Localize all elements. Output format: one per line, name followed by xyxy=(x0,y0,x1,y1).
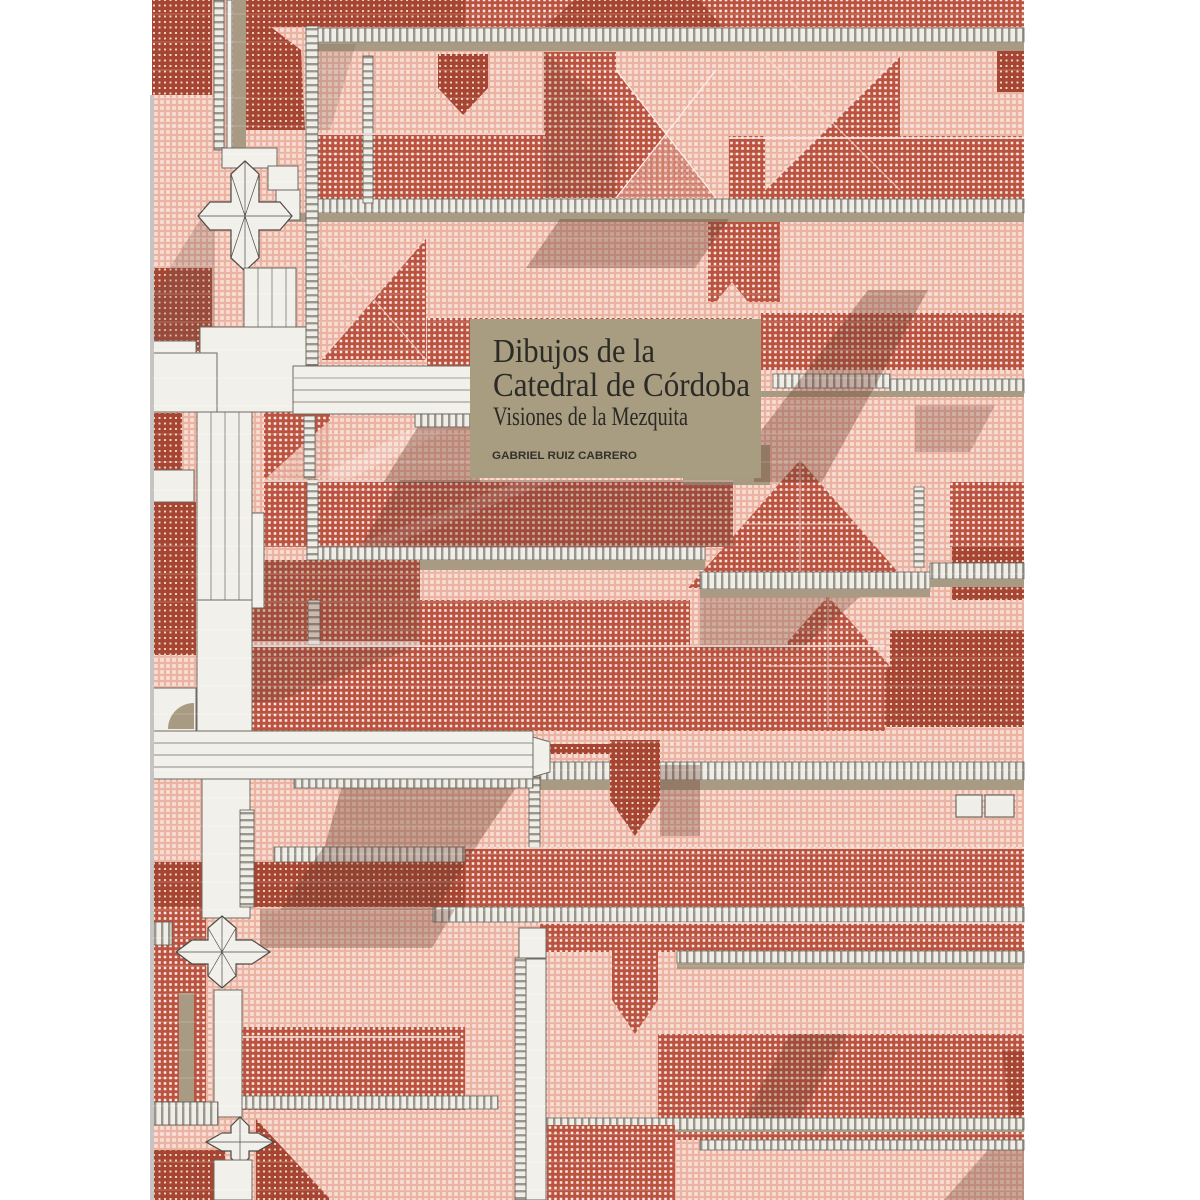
svg-text:Visiones de la Mezquita: Visiones de la Mezquita xyxy=(493,402,688,431)
svg-text:GABRIEL RUIZ CABRERO: GABRIEL RUIZ CABRERO xyxy=(492,450,637,462)
svg-text:Dibujos de la: Dibujos de la xyxy=(493,333,655,370)
svg-text:Catedral de Córdoba: Catedral de Córdoba xyxy=(493,367,750,404)
